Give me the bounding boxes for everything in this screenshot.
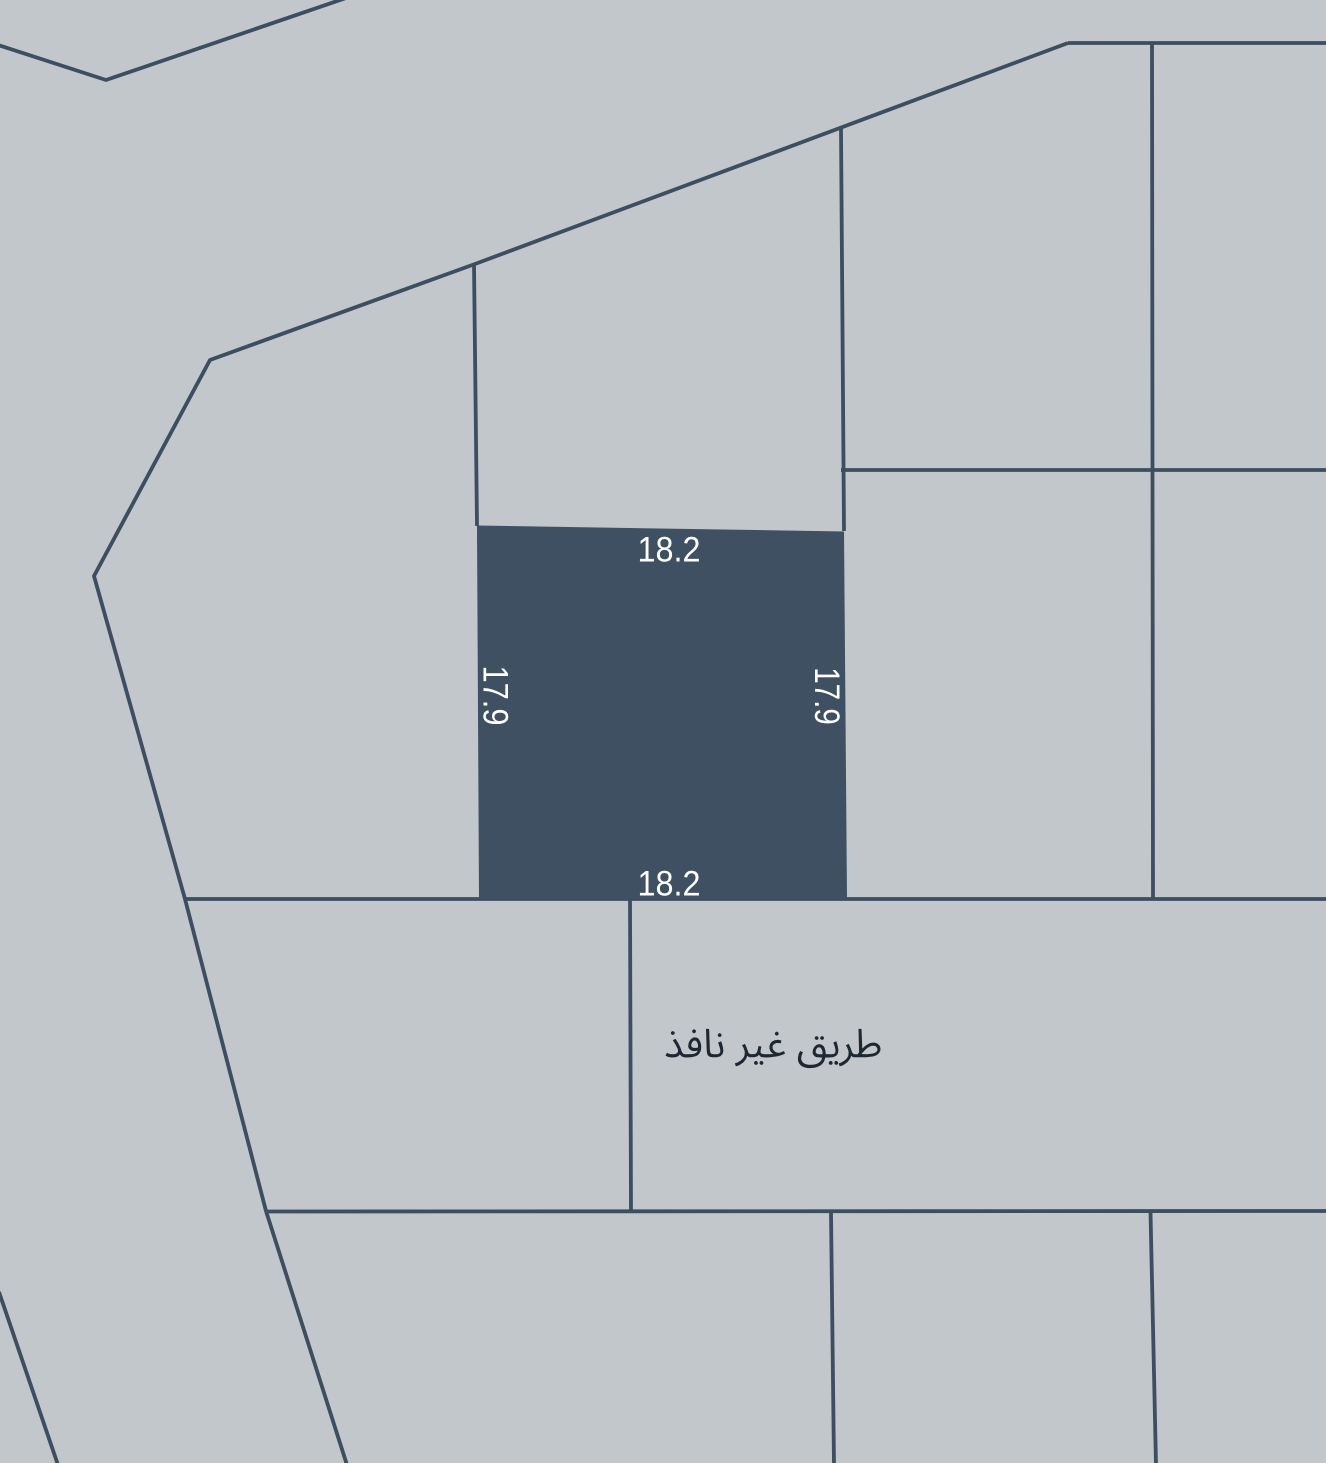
svg-text:17.9: 17.9 <box>807 667 846 725</box>
svg-text:17.9: 17.9 <box>476 666 515 726</box>
svg-text:18.2: 18.2 <box>638 865 701 904</box>
svg-text:18.2: 18.2 <box>638 531 701 570</box>
